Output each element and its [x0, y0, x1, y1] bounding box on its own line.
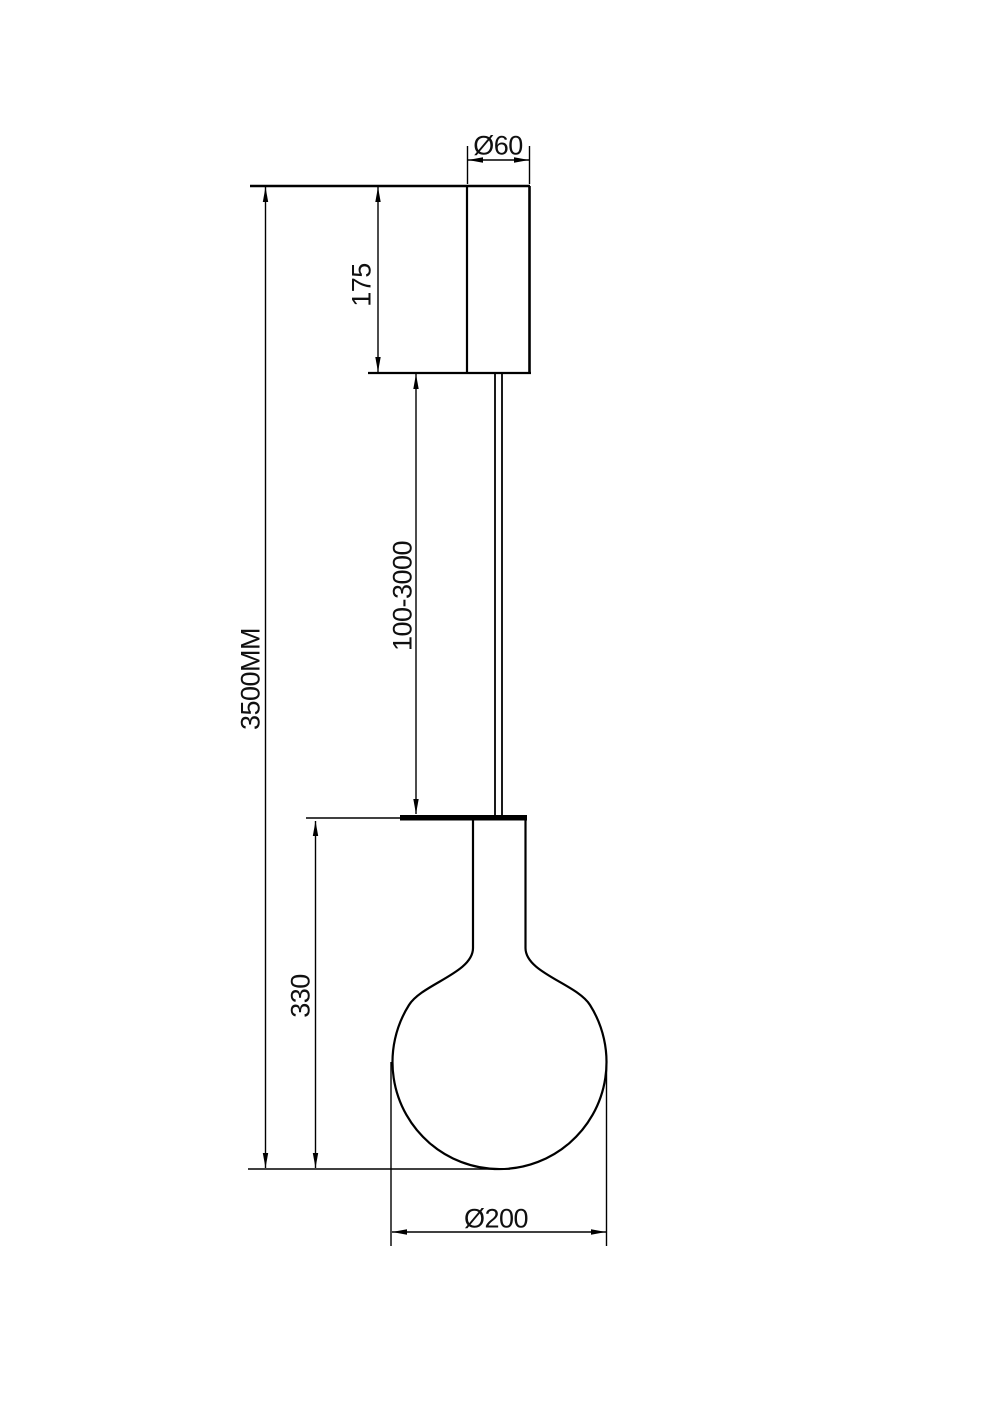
- pendant-lamp-technical-drawing: Ø60 175 3500MM 100-3000 330 Ø200: [0, 0, 992, 1403]
- arrowhead: [263, 1153, 268, 1168]
- arrowhead: [413, 374, 418, 389]
- arrowhead: [313, 1153, 318, 1168]
- label-max-drop: 3500MM: [238, 628, 265, 730]
- drawing-geometry: [0, 0, 992, 1403]
- socket-cap-bar: [400, 815, 527, 821]
- label-canopy-diameter: Ø60: [473, 133, 523, 160]
- arrowhead: [392, 1229, 407, 1234]
- label-canopy-height: 175: [349, 263, 376, 307]
- arrowhead: [413, 799, 418, 814]
- arrowhead: [263, 187, 268, 202]
- bulb-outline: [393, 821, 607, 1170]
- label-bulb-diameter: Ø200: [464, 1206, 528, 1233]
- arrowhead: [375, 187, 380, 202]
- arrowheads: [263, 157, 606, 1234]
- label-bulb-height: 330: [288, 974, 315, 1018]
- arrowhead: [375, 357, 380, 372]
- arrowhead: [591, 1229, 606, 1234]
- label-cable-range: 100-3000: [390, 541, 417, 651]
- arrowhead: [313, 821, 318, 836]
